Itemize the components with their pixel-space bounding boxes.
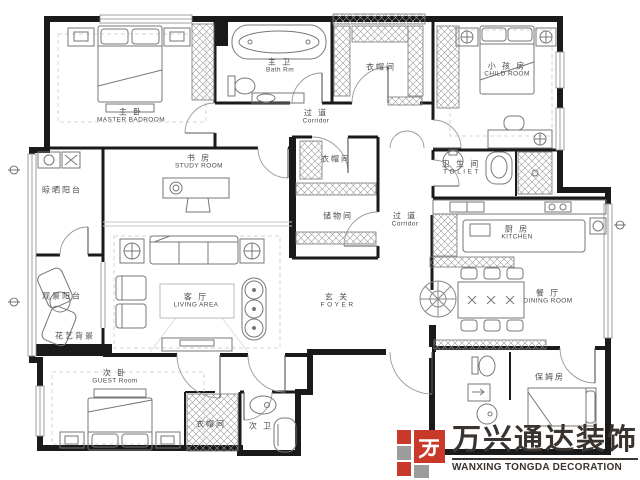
logo-text: 万兴通达装饰 WANXING TONGDA DECORATION — [452, 424, 638, 473]
room-label-master: 主 卧MASTER BADROOM — [97, 108, 165, 125]
room-label-study: 书 房STUDY ROOM — [175, 154, 223, 171]
room-label-corridor-top: 过 道Corridor — [303, 109, 330, 126]
laundry-appliances — [38, 152, 80, 168]
child-desk — [488, 116, 552, 148]
logo-glyph-square — [414, 430, 445, 463]
master-nightstands — [68, 28, 190, 46]
room-label-corridor-right: 过 道Corridor — [392, 212, 419, 229]
room-label-kitchen: 厨 房KITCHEN — [501, 225, 532, 242]
living-sofa — [150, 236, 238, 264]
wan-glyph-icon — [416, 433, 442, 461]
master-bed — [98, 26, 162, 112]
wardrobe-cabinets — [187, 14, 552, 451]
nanny-bed — [528, 388, 596, 426]
tv-console — [162, 338, 232, 351]
room-label-child: 小 孩 房CHILD ROOM — [484, 62, 530, 79]
logo-chinese-name: 万兴通达装饰 — [452, 424, 638, 457]
foyer-plant-feature — [420, 281, 456, 317]
room-label-balcony-leisure: 观景阳台 — [42, 291, 82, 300]
room-label-toilet: 卫 生 间T O L I E T — [442, 160, 480, 177]
dining-table-set — [458, 268, 524, 331]
guest-bed — [88, 389, 152, 450]
room-label-cloak-guest: 衣帽间 — [196, 419, 226, 428]
living-side-tables — [120, 239, 264, 263]
bathtub — [232, 25, 326, 59]
logo-square-gray-2 — [414, 465, 429, 478]
logo-square-gray-1 — [397, 446, 411, 460]
living-armchairs — [116, 276, 146, 328]
room-label-foyer: 玄 关F O Y E R — [321, 293, 354, 310]
room-label-bath-second: 次 卫 — [249, 421, 273, 430]
floor-plan-drawing — [0, 0, 640, 480]
room-label-guest: 次 卧GUEST Room — [92, 369, 137, 386]
room-label-balcony-laundry: 晾晒阳台 — [42, 185, 82, 194]
study-desk — [163, 178, 229, 212]
label-flower-feature: 花艺背景 — [55, 331, 95, 340]
company-logo: 万兴通达装饰 WANXING TONGDA DECORATION — [397, 424, 638, 478]
room-label-living: 客 厅LIVING AREA — [174, 293, 219, 310]
nanny-room-fixtures — [468, 356, 497, 424]
logo-english-name: WANXING TONGDA DECORATION — [452, 458, 638, 473]
entrance-opening — [386, 347, 432, 358]
room-label-nanny: 保姆房 — [535, 372, 565, 381]
room-label-storage: 储物间 — [323, 211, 353, 220]
main-bath-toilet — [228, 76, 255, 96]
floor-plan-page: 主 卧MASTER BADROOM 主 卫Bath Rm 衣帽间 小 孩 房CH… — [0, 0, 640, 480]
room-label-dining: 餐 厅DINING ROOM — [523, 289, 572, 306]
room-label-bath-main: 主 卫Bath Rm — [266, 58, 294, 75]
child-bed — [480, 26, 534, 94]
logo-square-red-1 — [397, 430, 411, 444]
logo-mark — [397, 424, 447, 478]
living-round-chairs — [242, 278, 266, 340]
room-label-cloak-center: 衣帽间 — [321, 154, 351, 163]
room-label-cloak-top: 衣帽间 — [366, 62, 396, 71]
logo-square-red-2 — [397, 462, 411, 476]
